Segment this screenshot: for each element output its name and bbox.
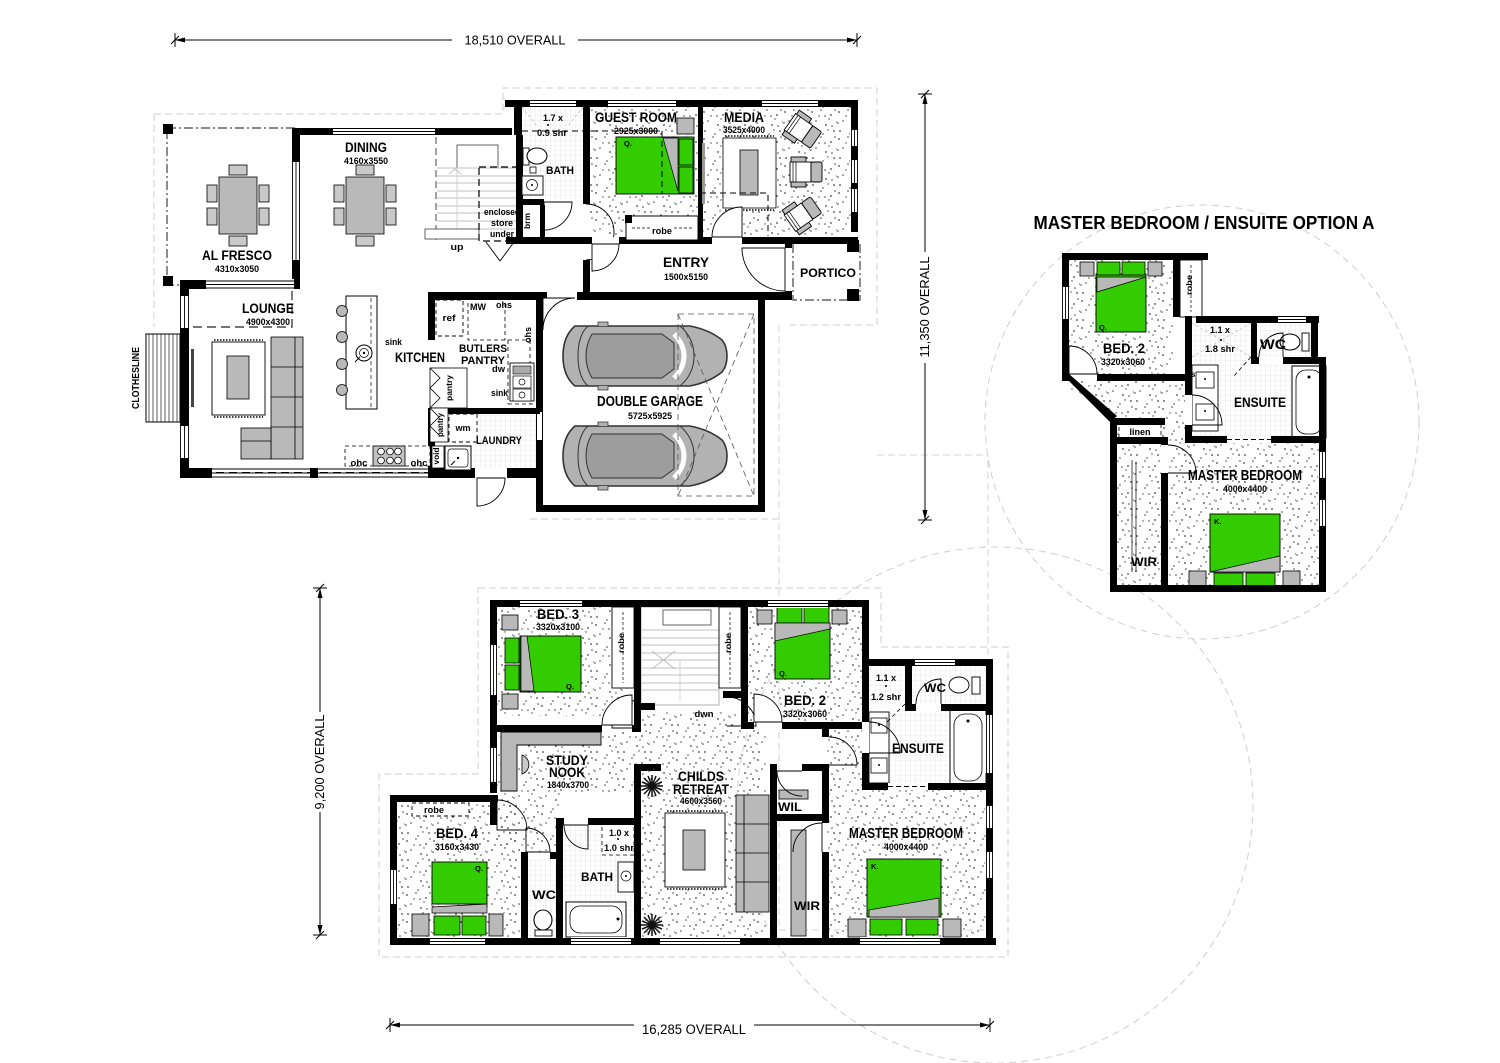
svg-text:WIR: WIR bbox=[794, 899, 820, 913]
svg-text:BUTLERS: BUTLERS bbox=[459, 343, 507, 355]
svg-text:BATH: BATH bbox=[581, 870, 613, 884]
svg-text:bs: bs bbox=[1186, 370, 1196, 379]
svg-text:16,285 OVERALL: 16,285 OVERALL bbox=[642, 1022, 746, 1037]
svg-text:2925x3000: 2925x3000 bbox=[614, 126, 658, 137]
svg-text:Q.: Q. bbox=[566, 682, 574, 691]
svg-text:ref: ref bbox=[443, 313, 457, 323]
svg-text:wm: wm bbox=[455, 423, 471, 433]
svg-text:AL FRESCO: AL FRESCO bbox=[202, 248, 272, 263]
svg-text:WIR: WIR bbox=[1131, 555, 1157, 569]
svg-text:NOOK: NOOK bbox=[549, 765, 585, 780]
svg-text:ENSUITE: ENSUITE bbox=[1234, 395, 1286, 410]
svg-text:1.0 shr: 1.0 shr bbox=[604, 843, 634, 853]
svg-text:linen: linen bbox=[1130, 427, 1151, 437]
svg-text:ohs: ohs bbox=[496, 300, 512, 310]
svg-text:Q.: Q. bbox=[779, 669, 787, 678]
svg-text:robe: robe bbox=[616, 633, 626, 653]
svg-text:4600x3560: 4600x3560 bbox=[680, 796, 722, 807]
svg-text:under: under bbox=[490, 229, 514, 240]
svg-text:MW: MW bbox=[470, 302, 486, 312]
svg-text:WC: WC bbox=[924, 681, 946, 695]
svg-text:Q.: Q. bbox=[1099, 323, 1107, 332]
svg-text:LAUNDRY: LAUNDRY bbox=[476, 435, 523, 447]
svg-text:sink: sink bbox=[491, 388, 509, 398]
svg-text:K.: K. bbox=[871, 862, 879, 871]
svg-text:1.7 x: 1.7 x bbox=[543, 113, 563, 123]
svg-text:KITCHEN: KITCHEN bbox=[395, 350, 445, 365]
svg-text:1840x3700: 1840x3700 bbox=[547, 780, 589, 791]
svg-text:BED. 4: BED. 4 bbox=[436, 826, 478, 841]
svg-text:dwn: dwn bbox=[695, 709, 714, 719]
svg-text:3320x3060: 3320x3060 bbox=[1101, 357, 1145, 368]
svg-text:ohc: ohc bbox=[411, 458, 428, 468]
svg-text:GUEST ROOM: GUEST ROOM bbox=[595, 110, 677, 125]
svg-text:sink: sink bbox=[385, 337, 403, 347]
svg-text:K.: K. bbox=[1214, 517, 1222, 526]
svg-text:DOUBLE GARAGE: DOUBLE GARAGE bbox=[597, 394, 703, 410]
svg-text:1.0 x: 1.0 x bbox=[609, 828, 629, 838]
svg-text:11,350 OVERALL: 11,350 OVERALL bbox=[918, 256, 932, 357]
svg-text:enclosed: enclosed bbox=[484, 207, 520, 218]
svg-text:0.9 shr: 0.9 shr bbox=[537, 128, 567, 138]
svg-text:3525x4000: 3525x4000 bbox=[723, 125, 765, 136]
svg-text:BATH: BATH bbox=[546, 165, 574, 177]
svg-text:3320x3100: 3320x3100 bbox=[536, 622, 580, 633]
svg-text:1.1 x: 1.1 x bbox=[1210, 325, 1230, 335]
svg-text:robe: robe bbox=[424, 805, 444, 815]
svg-text:1500x5150: 1500x5150 bbox=[664, 272, 708, 283]
svg-text:4000x4400: 4000x4400 bbox=[1223, 484, 1267, 495]
svg-text:void: void bbox=[431, 448, 441, 465]
svg-text:dw: dw bbox=[492, 364, 506, 374]
svg-text:ENTRY: ENTRY bbox=[663, 255, 709, 270]
svg-text:pantry: pantry bbox=[444, 375, 454, 401]
svg-text:LOUNGE: LOUNGE bbox=[242, 301, 294, 316]
svg-text:ENSUITE: ENSUITE bbox=[892, 741, 944, 756]
svg-text:1.2 shr: 1.2 shr bbox=[871, 692, 901, 702]
svg-text:1.1 x: 1.1 x bbox=[876, 673, 896, 683]
svg-text:robe: robe bbox=[1184, 275, 1194, 295]
svg-text:BED. 3: BED. 3 bbox=[537, 607, 579, 622]
svg-text:WIL: WIL bbox=[778, 800, 802, 814]
svg-text:up: up bbox=[451, 242, 464, 253]
svg-text:Q.: Q. bbox=[475, 864, 483, 873]
svg-text:BED. 2: BED. 2 bbox=[1103, 341, 1145, 356]
svg-text:RETREAT: RETREAT bbox=[673, 782, 730, 797]
svg-text:PORTICO: PORTICO bbox=[800, 266, 856, 280]
svg-text:3160x3430: 3160x3430 bbox=[435, 842, 479, 853]
svg-text:MASTER BEDROOM: MASTER BEDROOM bbox=[849, 826, 963, 842]
svg-text:ohc: ohc bbox=[351, 458, 368, 468]
svg-text:MASTER BEDROOM / ENSUITE OPTIO: MASTER BEDROOM / ENSUITE OPTION A bbox=[1034, 213, 1375, 233]
svg-text:store: store bbox=[491, 218, 513, 229]
svg-text:BED. 2: BED. 2 bbox=[784, 693, 826, 708]
svg-text:4160x3550: 4160x3550 bbox=[344, 156, 388, 167]
svg-text:18,510 OVERALL: 18,510 OVERALL bbox=[465, 34, 566, 48]
svg-text:4000x4400: 4000x4400 bbox=[884, 842, 928, 853]
svg-text:5725x5925: 5725x5925 bbox=[628, 411, 673, 422]
svg-text:CLOTHESLINE: CLOTHESLINE bbox=[130, 347, 142, 409]
svg-text:robe: robe bbox=[652, 226, 672, 236]
svg-text:MASTER BEDROOM: MASTER BEDROOM bbox=[1188, 468, 1302, 484]
svg-text:Q.: Q. bbox=[624, 139, 632, 148]
svg-text:MEDIA: MEDIA bbox=[724, 110, 764, 125]
svg-text:WC: WC bbox=[1260, 337, 1286, 352]
svg-text:4900x4300: 4900x4300 bbox=[246, 317, 290, 328]
svg-text:WC: WC bbox=[532, 888, 556, 902]
svg-text:1.8 shr: 1.8 shr bbox=[1205, 344, 1235, 354]
svg-text:4310x3050: 4310x3050 bbox=[215, 264, 259, 275]
svg-text:pantry: pantry bbox=[435, 413, 445, 437]
svg-text:ohs: ohs bbox=[523, 327, 533, 343]
svg-text:robe: robe bbox=[723, 633, 733, 653]
svg-text:DINING: DINING bbox=[345, 140, 387, 155]
svg-text:9,200 OVERALL: 9,200 OVERALL bbox=[313, 714, 327, 809]
svg-text:brm: brm bbox=[522, 213, 532, 229]
svg-text:3320x3060: 3320x3060 bbox=[783, 709, 827, 720]
